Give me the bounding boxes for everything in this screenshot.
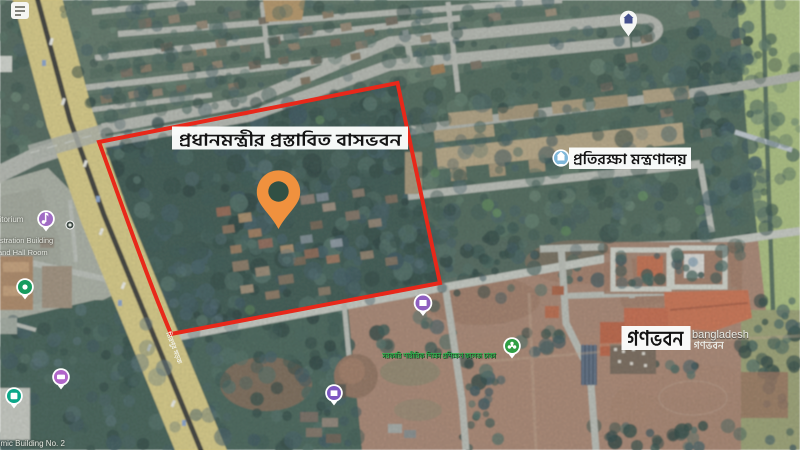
svg-text:nistration Building: nistration Building	[0, 236, 53, 245]
svg-text:ditorium: ditorium	[0, 215, 24, 224]
svg-text:emic Building No. 2: emic Building No. 2	[0, 439, 65, 448]
svg-text:and Hall Room: and Hall Room	[0, 248, 48, 257]
svg-text:bangladesh: bangladesh	[692, 329, 749, 341]
